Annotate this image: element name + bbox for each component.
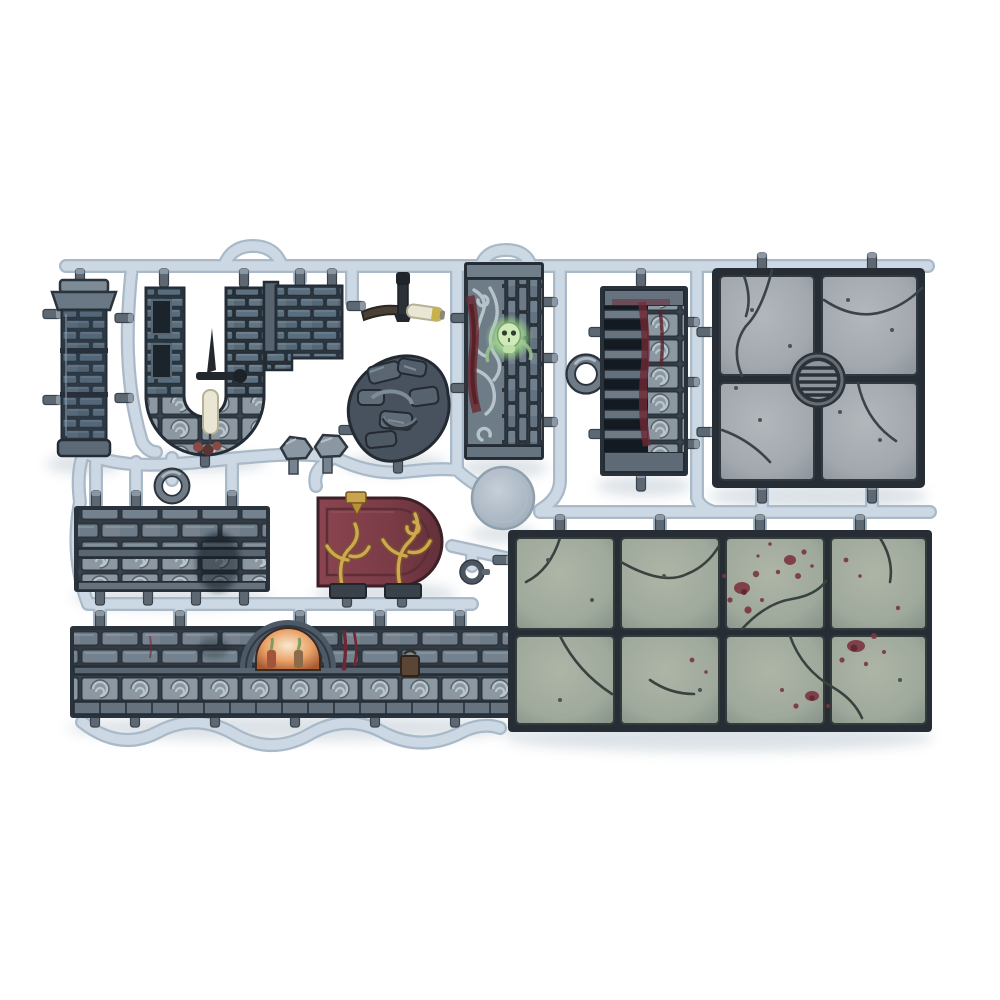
round-base-piece xyxy=(472,467,534,529)
floor-tile-4x2-piece xyxy=(508,530,932,732)
product-photo xyxy=(0,0,1000,1000)
drain-grate xyxy=(790,352,846,408)
glowing-skull xyxy=(485,314,533,362)
sprue-photo xyxy=(0,0,1000,1000)
glowing-arch xyxy=(246,626,330,670)
wall-corner-piece xyxy=(264,282,342,370)
long-wall-fireplace-piece xyxy=(70,626,520,718)
scorch-mark xyxy=(196,532,240,592)
blood-smear xyxy=(470,296,477,412)
stone-column-piece xyxy=(52,280,116,456)
carved-obelisk-piece xyxy=(464,262,544,460)
floor-tile-2x2-piece xyxy=(712,268,925,488)
